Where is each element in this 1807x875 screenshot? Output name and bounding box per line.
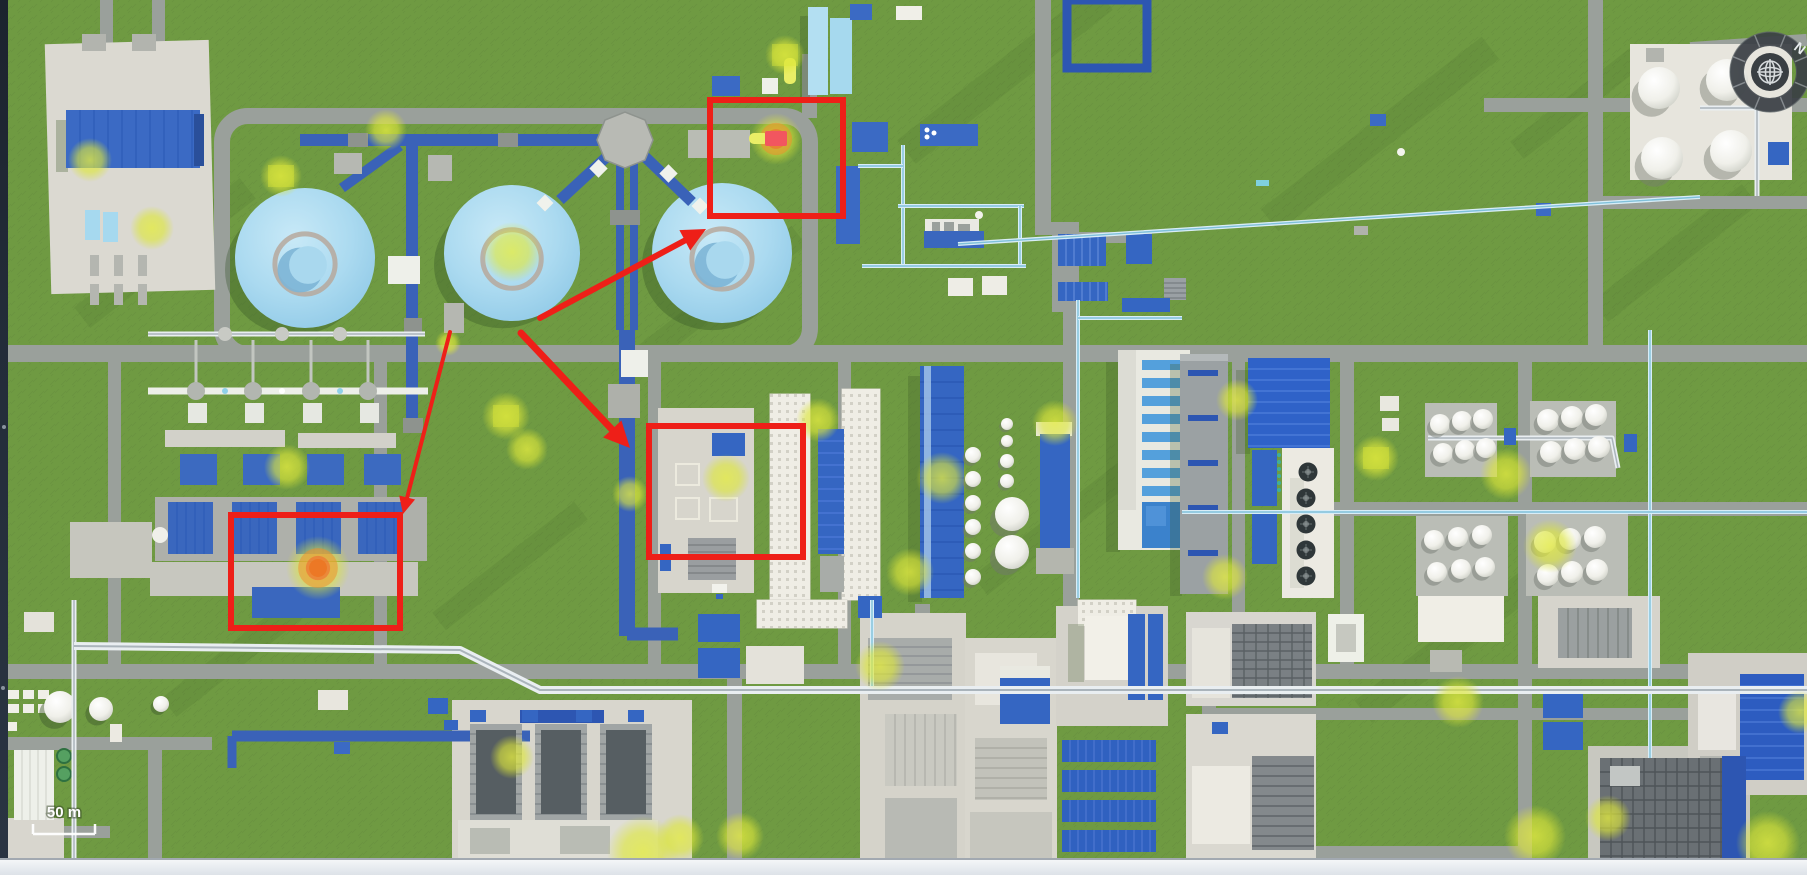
blue-box [470,710,486,722]
blue-panel [168,502,213,554]
teal-dot [1277,453,1281,457]
blue-box [428,698,448,714]
small-tank [152,527,168,543]
roof-edge [1180,354,1228,361]
road [148,737,162,864]
blue-box [576,710,592,722]
heat-spot [506,428,548,470]
pump [275,327,289,341]
white-box [1380,396,1399,411]
solar-array [1058,282,1108,301]
blue-roof-building [1543,722,1583,750]
cooling-fan [1299,463,1318,482]
vehicle [716,594,723,599]
gray-box [82,34,106,51]
roof-window [1188,370,1218,376]
valve [337,388,343,394]
pump-base [245,403,264,423]
map-container: 50 m N [0,0,1807,875]
blue-pump-house [180,454,217,485]
perforated-building [842,389,880,600]
pipe-sleeve [404,318,422,332]
gray-building [885,714,957,786]
gray-box [608,384,640,418]
blue-box [334,742,350,754]
alarm-spot[interactable] [286,536,350,600]
white-box [8,704,19,713]
white-building [1192,766,1250,844]
gray-box [132,34,156,51]
white-box [948,278,973,296]
heat-spot [1432,676,1484,728]
desktop-edge-strip [0,0,8,858]
cooling-fan [1297,541,1316,560]
gray-pad [1036,548,1074,574]
gray-box [444,303,464,333]
blue-roof-building [698,648,740,678]
white-building [896,6,922,20]
cooling-fan [1297,567,1316,586]
heat-spot [1353,435,1399,481]
clarifier [57,767,71,781]
building-side [194,114,204,166]
heat-spot [365,109,407,151]
pump-flange [187,382,205,400]
white-box [8,690,19,699]
heat-spot [916,452,968,504]
light-blue-unit [85,210,100,240]
slab [298,433,396,448]
teal-marker [1256,180,1269,186]
scale-bar-label: 50 m [47,804,81,821]
gray-unit [560,826,610,854]
shadow [1106,362,1120,552]
solar-array [1062,740,1156,762]
blue-panel [1252,450,1277,506]
white-box [23,704,34,713]
valve [279,388,285,394]
gray-building [975,738,1047,800]
post [138,255,147,276]
solar-array [1062,770,1156,792]
blue-pump-house [364,454,401,485]
heat-spot [68,138,112,182]
blue-roof-building [836,166,860,244]
heat-spot [1202,554,1248,600]
slab [165,430,285,447]
dark-roof-unit [1252,756,1314,850]
small-sphere [975,211,983,219]
blue-box [522,710,538,722]
gray-unit [1558,608,1632,658]
white-building [746,646,804,684]
solar-array [1062,800,1156,822]
heat-spot [482,222,542,282]
gray-building [885,798,957,860]
white-tower [1085,616,1129,680]
perforated-building [757,600,847,628]
pump-base [303,403,322,423]
white-box [110,724,122,742]
heat-spot [886,548,934,596]
blue-box [1212,722,1228,734]
pipe-sleeve [403,418,423,433]
white-box [621,350,648,377]
pump-flange [302,382,320,400]
heat-spot [702,454,750,502]
heat-spot [765,35,805,75]
road [108,362,121,664]
white-building [1418,596,1504,642]
teal-dot [1277,481,1281,485]
gray-detail [1336,624,1356,652]
shadow [1068,624,1084,682]
heat-spot [260,155,302,197]
desktop-dot [2,425,6,429]
heat-spot [855,641,905,691]
teal-dot [1277,460,1281,464]
manifold-platform [597,112,653,168]
roof-window [1188,550,1218,556]
teal-dot [1277,467,1281,471]
blue-roof-building [1000,678,1050,724]
blue-panel [232,502,277,554]
teal-dot [1277,488,1281,492]
blue-box [628,710,644,722]
pump [333,327,347,341]
white-box [24,612,54,632]
map-canvas[interactable]: 50 m N [0,0,1807,875]
pump-base [360,403,379,423]
blue-roof-building [852,122,888,152]
white-box [318,690,348,710]
heat-spot [264,444,310,490]
solar-array [1122,298,1170,312]
desktop-dot [1,686,5,690]
blue-roof-building [698,614,740,642]
horizontal-scrollbar[interactable] [0,858,1807,875]
compressor-core [541,730,581,814]
vent [925,135,930,140]
light-blue-unit [103,212,118,242]
gray-box [1646,48,1664,62]
road [0,737,212,750]
blue-box [444,720,458,730]
gray-box [1354,226,1368,235]
solar-array [1062,830,1156,852]
blue-box [1504,428,1516,445]
light-blue-tower [808,7,828,95]
road [1035,0,1051,224]
heat-spot [1585,795,1631,841]
blue-pump-house [307,454,344,485]
gray-box [1430,650,1462,672]
heat-spot [716,812,764,860]
blue-roof-building [920,124,978,146]
roof-window [1188,415,1218,421]
heat-spot [490,735,534,779]
slab [70,522,152,578]
cooling-fan [1297,515,1316,534]
gray-unit [1164,278,1186,300]
pipe-sleeve [610,210,640,225]
heat-spot [1032,400,1078,446]
vehicle [712,584,727,593]
roof-window [1188,460,1218,466]
white-box [23,690,34,699]
vent [925,128,930,133]
post [138,284,147,305]
blue-roof-building [712,433,745,456]
small-sphere [1397,148,1405,156]
cooling-fan [1297,489,1316,508]
blue-roof-building [818,429,844,554]
pipe-sleeve [348,133,368,147]
solar-array [1126,234,1152,264]
teal-dot [1277,474,1281,478]
blue-slab [924,231,984,248]
wall [1118,350,1136,510]
blue-box [712,76,740,96]
white-building [1698,688,1736,750]
blue-panel [358,502,403,554]
water-pool-light [1146,506,1166,526]
blue-box [1624,434,1637,452]
road [0,345,1807,362]
pump-flange [359,382,377,400]
pump-base [188,403,207,423]
pump [218,327,232,341]
heat-spot [130,206,174,250]
post [114,284,123,305]
post [90,255,99,276]
heat-spot [1216,379,1258,421]
white-box [762,78,778,94]
gray-detail [1610,766,1640,786]
white-cap [1000,666,1050,680]
heat-spot [1480,448,1532,500]
heat-spot [1523,519,1577,573]
blue-box [850,4,872,20]
white-box [388,256,420,284]
blue-box [1370,114,1386,126]
white-box [982,276,1007,295]
gray-building [688,130,750,158]
valve [222,388,228,394]
compressor-core [606,730,646,814]
gray-box [334,153,362,174]
clarifier [57,749,71,763]
heat-spot [612,476,648,512]
blue-roof-building [1040,434,1070,548]
pipe-sleeve [498,133,518,147]
white-box [1382,418,1399,431]
pump-flange [244,382,262,400]
light-blue-tower [830,18,852,94]
road [1588,0,1603,345]
post [114,255,123,276]
blue-panel-roof [1248,358,1330,448]
gray-building [970,812,1052,864]
gray-unit [470,828,510,854]
vent [932,131,937,136]
blue-panel [1768,142,1789,165]
gray-box [428,155,452,181]
gray-unit [820,556,844,592]
blue-panel [1252,510,1277,564]
post [90,284,99,305]
